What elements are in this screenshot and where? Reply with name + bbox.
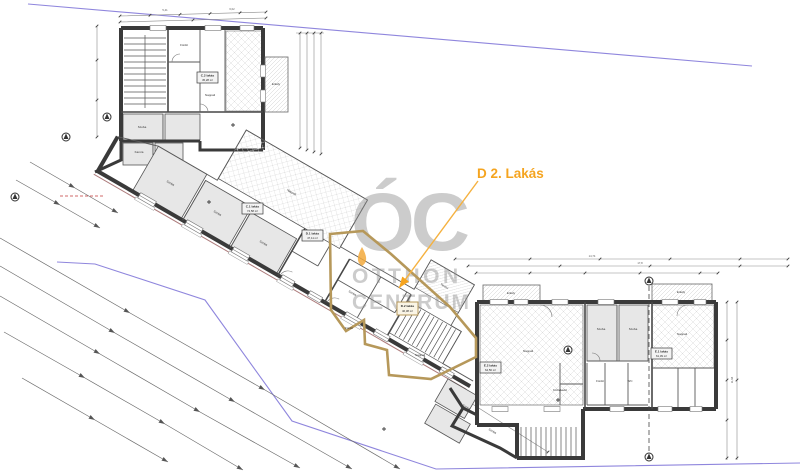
room-label: Nappali [677, 332, 688, 336]
room-label: Közlekedő [553, 388, 567, 392]
watermark-logo: ÓC [351, 177, 468, 268]
room-label: Fürdő [345, 326, 353, 330]
apartment-label-c2: C.2 lakás 45,28 m² [197, 72, 218, 83]
room-label: Nappali [205, 93, 216, 97]
apartment-label-e1: E.1 lakás 61,39 m² [651, 348, 672, 359]
watermark: ÓC OTTHON CENTRUM [351, 177, 471, 314]
apartment-label-c1: C.1 lakás 74,58 m² [242, 203, 263, 214]
room-label: Erkély [507, 291, 516, 295]
room [123, 143, 153, 165]
apartment-area: 64,56 m² [485, 368, 496, 372]
stairwell-c [124, 35, 166, 108]
apartment-name: D.2 lakás [401, 304, 415, 308]
room-label: Fürdő [180, 43, 188, 47]
room-label: Szoba [629, 327, 638, 331]
room-label: Nappali [523, 349, 534, 353]
window [552, 300, 568, 305]
d2-label: D 2. Lakás [477, 166, 544, 181]
room-label: Erkély [272, 82, 281, 86]
apartment-area: 47,11 m² [307, 236, 318, 240]
window [694, 300, 706, 305]
living-area [480, 305, 583, 405]
room-label: Szoba [597, 327, 606, 331]
window [662, 300, 678, 305]
dimension-value: 11,94 [730, 376, 734, 383]
balcony-door [261, 90, 266, 102]
apartment-name: E.1 lakás [655, 350, 669, 354]
apartment-name: C.1 lakás [246, 205, 260, 209]
floor-plan-canvas: 5,41 6,02 14,74 17,8 11,94 [0, 0, 800, 471]
boundary-line-top [28, 4, 752, 66]
window [490, 300, 508, 305]
apartment-label-d1: D.1 lakás 47,11 m² [302, 230, 323, 241]
window [544, 407, 560, 412]
window [514, 300, 528, 305]
room-label: Nappali [415, 353, 426, 357]
floor-plan-image: 5,41 6,02 14,74 17,8 11,94 [0, 0, 800, 471]
room [587, 305, 617, 361]
room-label: Fürdő [596, 379, 604, 383]
room [165, 114, 200, 140]
window [150, 26, 166, 31]
room [619, 305, 648, 361]
apartment-area: 46,38 m² [402, 309, 413, 313]
apartment-area: 45,28 m² [202, 78, 213, 82]
block-e [477, 277, 716, 461]
apartment-area: 61,39 m² [656, 354, 667, 358]
window [205, 26, 221, 31]
dimension-value: 14,74 [589, 254, 596, 258]
apartment-name: D.1 lakás [306, 232, 320, 236]
room-label: Erkély [677, 290, 686, 294]
room-label: Szoba [138, 125, 147, 129]
dimension-value: 6,02 [229, 7, 235, 11]
apartment-label-d2: D.2 lakás 46,38 m² [397, 302, 418, 315]
kitchen-area [226, 31, 262, 111]
apartment-name: C.2 lakás [201, 74, 215, 78]
room-label: Kamra [135, 150, 144, 154]
apartment-name: E.2 lakás [484, 364, 498, 368]
balcony-door [261, 65, 266, 77]
window [658, 407, 672, 412]
window [690, 407, 702, 412]
apartment-label-e2: E.2 lakás 64,56 m² [480, 362, 501, 373]
apartment-area: 74,58 m² [247, 209, 258, 213]
window [610, 407, 624, 412]
dimension-value: 17,8 [637, 261, 643, 265]
window [240, 26, 254, 31]
room-label: WC [628, 379, 634, 383]
window [598, 300, 614, 305]
window [492, 407, 508, 412]
dimension-value: 5,41 [162, 8, 168, 12]
room-label: Szoba [488, 427, 498, 435]
